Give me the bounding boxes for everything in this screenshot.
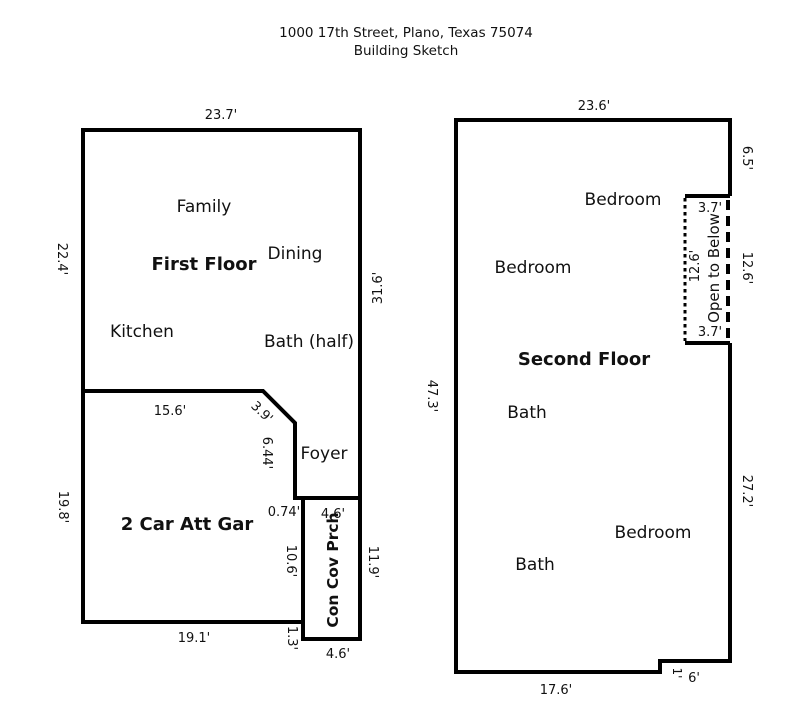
- dim-ff-foyer-wall: 6.44': [259, 437, 274, 470]
- sketch-subtitle: Building Sketch: [354, 43, 459, 59]
- building-sketch-canvas: 1000 17th Street, Plano, Texas 75074 Bui…: [0, 0, 796, 709]
- room-bedroom-top: Bedroom: [585, 190, 662, 210]
- room-porch: Con Cov Prch: [324, 512, 342, 627]
- room-family: Family: [177, 197, 232, 217]
- dim-sf-right-upper: 6.5': [739, 146, 754, 170]
- dim-garage-right: 10.6': [283, 545, 298, 578]
- room-bedroom-bottom: Bedroom: [615, 523, 692, 543]
- second-floor-title: Second Floor: [518, 349, 650, 370]
- room-foyer: Foyer: [300, 444, 347, 464]
- building-sketch-page: 1000 17th Street, Plano, Texas 75074 Bui…: [0, 0, 796, 709]
- dim-ff-left-upper: 22.4': [54, 243, 69, 276]
- dim-garage-left: 19.8': [55, 491, 70, 524]
- dim-porch-bottom: 4.6': [326, 647, 350, 662]
- dim-open-bottom: 3.7': [698, 325, 722, 340]
- room-garage: 2 Car Att Gar: [121, 514, 254, 535]
- dim-ff-step: 1.3': [284, 626, 299, 650]
- room-dining: Dining: [268, 244, 323, 264]
- dim-ff-jog: 0.74': [268, 505, 301, 520]
- dim-ff-diagonal: 3.9': [247, 399, 275, 427]
- dim-ff-right-height: 31.6': [371, 272, 386, 305]
- room-bath-upper: Bath: [507, 403, 547, 423]
- dim-ff-top-width: 23.7': [205, 108, 238, 123]
- room-bedroom-mid: Bedroom: [495, 258, 572, 278]
- room-open-to-below: Open to Below: [705, 213, 723, 323]
- dim-sf-top-width: 23.6': [578, 99, 611, 114]
- first-floor-outline: [83, 130, 360, 498]
- dim-open-left: 12.6': [688, 250, 703, 283]
- dim-porch-right: 11.9': [365, 546, 380, 579]
- dim-sf-notch-height: 1': [670, 668, 684, 679]
- room-bath-lower: Bath: [515, 555, 555, 575]
- address-title: 1000 17th Street, Plano, Texas 75074: [279, 25, 533, 41]
- dim-open-right: 12.6': [739, 252, 754, 285]
- dim-garage-bottom: 19.1': [178, 631, 211, 646]
- dim-sf-left-height: 47.3': [424, 380, 439, 413]
- first-floor-title: First Floor: [151, 254, 256, 275]
- dim-sf-notch-width: 6': [688, 671, 700, 686]
- dim-sf-bottom-width: 17.6': [540, 683, 573, 698]
- dim-sf-right-lower: 27.2': [739, 475, 754, 508]
- dim-ff-kitchen-wall: 15.6': [154, 404, 187, 419]
- room-bath-half: Bath (half): [264, 332, 354, 352]
- room-kitchen: Kitchen: [110, 322, 174, 342]
